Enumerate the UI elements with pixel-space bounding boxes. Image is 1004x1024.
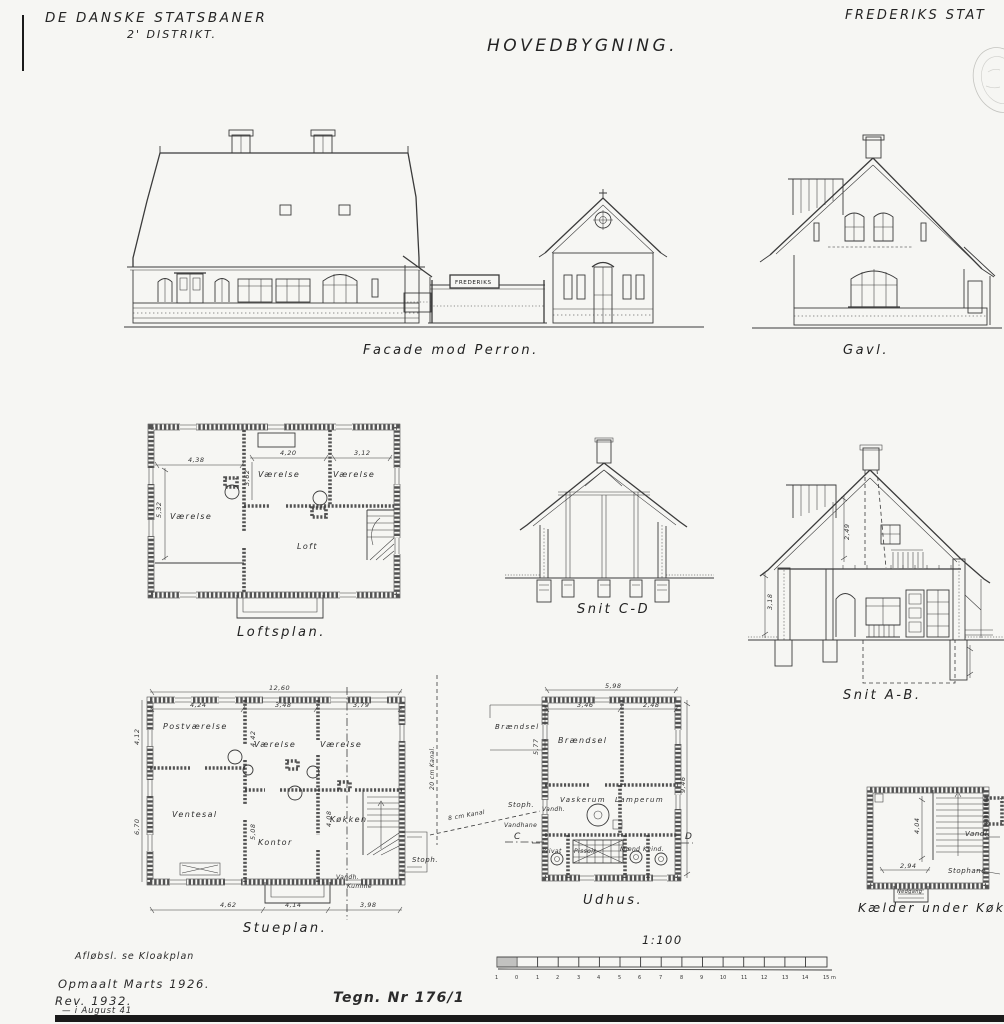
stamp-mark xyxy=(962,42,1004,122)
gavl-dormer xyxy=(788,179,843,215)
loftsplan-drawing: 4,38 4,20 3,12 5,32 3,62 xyxy=(140,420,430,650)
snit-ab-drawing: 2,49 3,18 xyxy=(748,440,1004,702)
room-label-loft-vaerelse1: Værelse xyxy=(170,512,212,521)
room-label-vaerelse1: Værelse xyxy=(254,740,296,749)
loft-stair xyxy=(367,510,394,560)
svg-text:4,14: 4,14 xyxy=(285,901,301,909)
snit-cd-caption: Snit C-D xyxy=(577,602,650,617)
drawing-sheet: DE DANSKE STATSBANER 2' DISTRIKT. HOVEDB… xyxy=(0,0,1004,1024)
udhus-drawing: 5,98 3,46 2,48 5,77 9,46 xyxy=(535,685,695,900)
label-vandh-udhus: Vandh. xyxy=(542,806,565,813)
gavl-caption: Gavl. xyxy=(843,343,889,358)
room-label-kvind: Kvind. xyxy=(643,846,664,853)
page-title: HOVEDBYGNING. xyxy=(487,36,678,56)
svg-text:3,46: 3,46 xyxy=(577,701,593,709)
label-vandl: Vandl. xyxy=(965,830,990,838)
station-name: FREDERIKS STAT xyxy=(845,8,986,23)
svg-text:0: 0 xyxy=(515,975,518,981)
outbuilding-elevation xyxy=(539,189,667,323)
svg-text:4: 4 xyxy=(597,975,600,981)
label-stophane: Stophane xyxy=(948,867,986,875)
label-vandh: Vandh. xyxy=(336,874,359,881)
kaelder-drawing: 2,94 4,04 xyxy=(858,782,1004,907)
scan-edge-bottom xyxy=(55,1015,1004,1022)
stueplan-caption: Stueplan. xyxy=(243,921,327,936)
gavl-windows xyxy=(814,213,926,307)
room-label-privat: Privat xyxy=(542,848,562,855)
svg-text:3: 3 xyxy=(577,975,580,981)
ab-doors xyxy=(906,590,949,637)
room-label-ventesal: Ventesal xyxy=(172,810,218,819)
room-label-pissoir: Pissoir xyxy=(574,848,596,855)
loftsplan-caption: Loftsplan. xyxy=(237,625,326,640)
svg-text:3,62: 3,62 xyxy=(243,470,251,486)
kaelder-caption: Kælder under Køkken. xyxy=(858,901,1004,915)
note-afloeb: Afløbsl. se Kloakplan xyxy=(75,951,194,962)
snit-cd-drawing xyxy=(500,430,720,630)
label-vandhane: Vandhane xyxy=(504,822,537,829)
svg-text:5,08: 5,08 xyxy=(249,824,257,840)
room-label-vaerelse2: Værelse xyxy=(320,740,362,749)
svg-text:2,94: 2,94 xyxy=(900,862,916,870)
svg-text:3,48: 3,48 xyxy=(275,701,291,709)
room-label-koekken: Køkken xyxy=(330,815,367,824)
gavl-lean-to xyxy=(964,247,995,325)
snit-ab-caption: Snit A-B. xyxy=(843,688,921,703)
room-label-loft-vaerelse2: Værelse xyxy=(258,470,300,479)
svg-text:7: 7 xyxy=(659,975,662,981)
svg-text:10: 10 xyxy=(720,975,726,981)
svg-text:4,62: 4,62 xyxy=(220,901,236,909)
scale-bar-drawing: 1 0 1 2 3 4 5 6 7 8 9 10 11 12 13 14 15 … xyxy=(480,930,850,990)
svg-text:9: 9 xyxy=(700,975,703,981)
main-building xyxy=(127,130,425,323)
svg-text:12,60: 12,60 xyxy=(269,684,290,692)
svg-text:6,70: 6,70 xyxy=(133,819,141,835)
room-label-loft-vaerelse3: Værelse xyxy=(333,470,375,479)
stueplan-drawing: 12,60 4,24 3,48 3,79 4,12 6,70 4,42 5,08… xyxy=(135,685,445,925)
svg-text:3,18: 3,18 xyxy=(766,594,774,610)
label-stoph-courtyard: Stoph. xyxy=(508,801,534,809)
room-label-lamperum: Lamperum xyxy=(615,796,664,804)
room-label-postvaerelse: Postværelse xyxy=(163,722,228,731)
section-marker-c: C xyxy=(514,832,522,842)
svg-text:2: 2 xyxy=(556,975,559,981)
label-kumme: Kumme xyxy=(347,883,372,890)
svg-text:5,98: 5,98 xyxy=(605,682,621,690)
svg-text:13: 13 xyxy=(782,975,788,981)
room-label-braendsel: Brændsel xyxy=(558,736,607,745)
scale-tick-labels: 1 0 1 2 3 4 5 6 7 8 9 10 11 12 13 14 15 … xyxy=(495,975,836,981)
svg-text:9,46: 9,46 xyxy=(679,777,687,793)
svg-text:8: 8 xyxy=(680,975,683,981)
facade-elevation-drawing: FREDERIKS xyxy=(120,125,710,335)
svg-text:14: 14 xyxy=(802,975,808,981)
facade-caption: Facade mod Perron. xyxy=(363,343,539,358)
gavl-elevation-drawing xyxy=(750,135,1004,335)
room-label-kontor: Kontor xyxy=(258,838,293,847)
note-rev2: — i August 41 xyxy=(62,1006,132,1016)
scan-edge-left xyxy=(22,15,24,71)
svg-text:3,98: 3,98 xyxy=(360,901,376,909)
svg-text:12: 12 xyxy=(761,975,767,981)
label-kanal-20cm: 20 cm Kanal. xyxy=(429,746,436,790)
svg-text:15 m: 15 m xyxy=(823,975,836,981)
room-label-maend: Mænd xyxy=(620,846,640,853)
ab-dormer xyxy=(786,485,836,518)
svg-text:4,04: 4,04 xyxy=(913,818,921,834)
footings xyxy=(537,580,669,602)
room-label-braendsel-shed: Brændsel xyxy=(495,723,540,731)
drawing-number: Tegn. Nr 176/1 xyxy=(333,990,465,1006)
station-sign-text: FREDERIKS xyxy=(455,280,492,286)
main-stair xyxy=(363,790,399,855)
company-title: DE DANSKE STATSBANER xyxy=(45,10,267,26)
svg-text:5: 5 xyxy=(618,975,621,981)
svg-text:5,77: 5,77 xyxy=(532,738,540,755)
svg-text:1: 1 xyxy=(495,975,498,981)
label-nedgang: Nedgang xyxy=(897,889,922,895)
svg-text:2,48: 2,48 xyxy=(643,701,659,709)
svg-text:6: 6 xyxy=(638,975,641,981)
udhus-caption: Udhus. xyxy=(583,893,643,908)
room-label-loft: Loft xyxy=(297,542,318,551)
svg-text:4,38: 4,38 xyxy=(188,456,204,464)
room-label-vaskerum: Vaskerum xyxy=(560,796,606,804)
svg-text:1: 1 xyxy=(536,975,539,981)
note-opmaalt: Opmaalt Marts 1926. xyxy=(58,977,210,991)
svg-text:3,12: 3,12 xyxy=(354,449,370,457)
svg-text:5,32: 5,32 xyxy=(155,502,163,518)
svg-text:4,24: 4,24 xyxy=(190,701,206,709)
svg-text:4,12: 4,12 xyxy=(133,729,141,745)
svg-text:11: 11 xyxy=(741,975,747,981)
district-subtitle: 2' DISTRIKT. xyxy=(127,28,217,41)
svg-text:3,79: 3,79 xyxy=(353,701,369,709)
svg-text:4,20: 4,20 xyxy=(280,449,296,457)
platform-fence: FREDERIKS xyxy=(428,275,547,323)
kaelder-stair xyxy=(933,790,983,860)
